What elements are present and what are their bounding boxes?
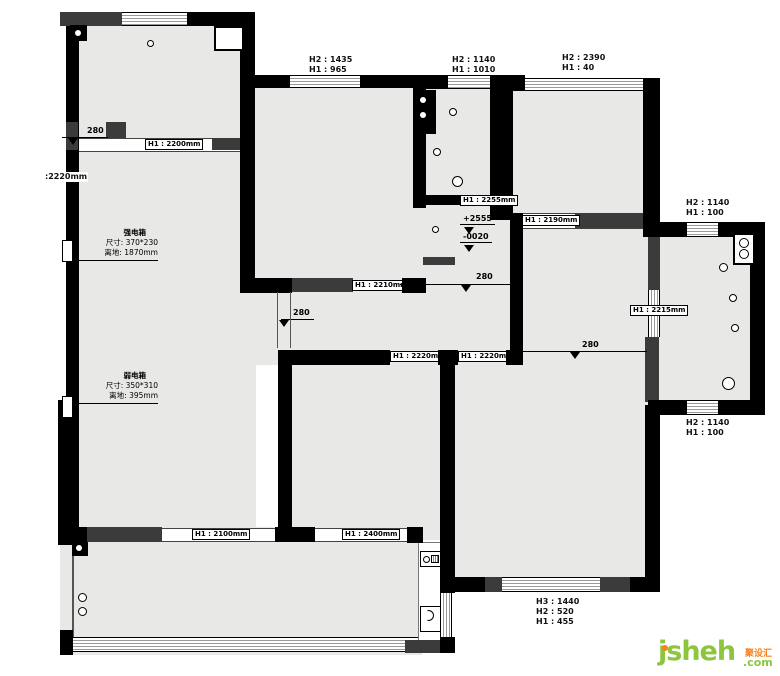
weak-electric-box-note: 弱电箱 尺寸: 350*310 离地: 395mm: [72, 371, 158, 404]
window: [440, 593, 452, 637]
room-mid-top: [240, 75, 413, 293]
wall: [718, 400, 765, 415]
dim-line: H1 : 455: [536, 617, 579, 627]
beam-segment: [575, 213, 643, 228]
plumbing-point: [731, 324, 739, 332]
wall: [440, 637, 455, 653]
wall: [407, 527, 423, 543]
window: [687, 222, 718, 237]
washer-fixture: [733, 233, 755, 265]
wall: [60, 630, 73, 655]
level-line: [400, 284, 510, 285]
note-height: 离地: 1870mm: [72, 248, 158, 258]
note-size: 尺寸: 350*310: [72, 381, 158, 391]
wall: [66, 527, 87, 542]
window: [502, 577, 600, 592]
lintel-label: H1 : 2100mm: [192, 529, 250, 540]
ceiling-point: [147, 40, 154, 47]
fixture-point: [420, 97, 426, 103]
lintel-label: H1 : 2400mm: [342, 529, 400, 540]
window: [687, 400, 718, 415]
plumbing-point: [719, 263, 728, 272]
fixture-point: [420, 112, 426, 118]
beam-segment: [212, 138, 243, 150]
wall: [255, 75, 290, 88]
wall: [510, 213, 523, 365]
fixture-point: [75, 30, 81, 36]
lintel-label: H1 : 2215mm: [630, 305, 688, 316]
beam-segment: [66, 122, 78, 150]
wall: [426, 75, 448, 89]
level-triangle-icon: [68, 138, 78, 145]
window-dim-label: H2 : 1140 H1 : 100: [686, 198, 729, 218]
lintel-label: H1 : 2255mm: [460, 195, 518, 206]
wall: [240, 12, 255, 293]
wall: [630, 577, 660, 592]
plumbing-point: [432, 226, 439, 233]
valve-icon: [423, 556, 430, 563]
strong-electric-box-symbol: [62, 240, 73, 262]
wall: [275, 527, 315, 542]
room-bottom-right: [440, 348, 660, 592]
wall: [58, 400, 79, 545]
note-title: 弱电箱: [72, 371, 158, 381]
wall: [402, 278, 426, 293]
wall: [72, 556, 74, 637]
leader-line: [290, 292, 291, 348]
leader-line: [277, 292, 278, 348]
level-value: 280: [293, 308, 310, 317]
wall: [440, 365, 455, 593]
beam-segment: [485, 577, 502, 592]
fixture-point: [76, 545, 82, 551]
wall: [455, 577, 485, 592]
room-top-right: [513, 78, 660, 230]
dim-line: H1 : 100: [686, 208, 729, 218]
dim-line: H2 : 1140: [452, 55, 495, 65]
level-value: 280: [582, 340, 599, 349]
dim-line: H1 : 965: [309, 65, 352, 75]
level-value: 280: [87, 126, 104, 135]
beam-segment: [87, 527, 162, 542]
window-dim-label: H2 : 1140 H1 : 1010: [452, 55, 495, 75]
dim-line: H2 : 2390: [562, 53, 605, 63]
weak-electric-box-symbol: [62, 396, 73, 418]
window: [290, 75, 360, 88]
level-triangle-icon: [464, 245, 474, 252]
elevation-value: +2555: [460, 214, 495, 225]
dim-line: H1 : 100: [686, 428, 729, 438]
window-dim-label: H2 : 2390 H1 : 40: [562, 53, 605, 73]
duct-shaft: [214, 26, 244, 51]
room-bedroom: [278, 350, 455, 540]
window: [73, 637, 418, 652]
note-size: 尺寸: 370*230: [72, 238, 158, 248]
room-living: [66, 150, 256, 540]
dim-line: H2 : 520: [536, 607, 579, 617]
dim-line: H1 : 40: [562, 63, 605, 73]
wall: [240, 278, 292, 293]
wall: [660, 222, 687, 237]
wall: [360, 75, 413, 88]
plumbing-point: [729, 294, 737, 302]
elevation-value: -0020: [460, 232, 492, 243]
dim-line: H2 : 1140: [686, 198, 729, 208]
level-triangle-icon: [279, 320, 289, 327]
window: [448, 75, 490, 89]
dim-line: H2 : 1140: [686, 418, 729, 428]
plumbing-point: [433, 148, 441, 156]
plumbing-point: [449, 108, 457, 116]
wall: [506, 350, 523, 365]
lintel-label: H1 : 2200mm: [145, 139, 203, 150]
beam-segment: [60, 12, 122, 26]
wall: [643, 78, 660, 237]
window: [122, 12, 187, 26]
logo-tld-text: .com: [743, 656, 773, 669]
wall: [645, 405, 660, 592]
note-title: 强电箱: [72, 228, 158, 238]
beam-segment: [648, 237, 660, 290]
jsheh-logo: jsheh 聚设汇 .com: [658, 640, 780, 674]
window-dim-label: H2 : 1140 H1 : 100: [686, 418, 729, 438]
wall: [278, 350, 292, 540]
beam-segment: [423, 257, 455, 265]
dim-line: H1 : 1010: [452, 65, 495, 75]
window: [525, 78, 643, 91]
sink-fixture: [420, 606, 441, 632]
plumbing-point: [78, 593, 87, 602]
beam-segment: [645, 337, 659, 402]
level-value: 280: [476, 272, 493, 281]
meter-fixture: [420, 551, 441, 567]
plumbing-point: [78, 607, 87, 616]
grid-icon: [431, 555, 439, 563]
wall: [438, 350, 458, 365]
level-line: [455, 351, 647, 352]
balcony-bottom: [60, 527, 422, 655]
dim-line: H2 : 1435: [309, 55, 352, 65]
beam-segment: [600, 577, 630, 592]
beam-segment: [292, 278, 353, 292]
strong-electric-box-note: 强电箱 尺寸: 370*230 离地: 1870mm: [72, 228, 158, 261]
floor-drain: [722, 377, 735, 390]
note-height: 离地: 395mm: [72, 391, 158, 401]
wall: [278, 350, 390, 365]
lintel-label: H1 : 2190mm: [522, 215, 580, 226]
logo-brand-text: jsheh: [658, 636, 735, 667]
knob-icon: [739, 249, 749, 259]
window-dim-label: H3 : 1440 H2 : 520 H1 : 455: [536, 597, 579, 627]
plumbing-point: [452, 176, 463, 187]
level-triangle-icon: [461, 285, 471, 292]
door-swing-icon: [423, 610, 434, 621]
knob-icon: [739, 238, 749, 248]
window-dim-label: H2 : 1435 H1 : 965: [309, 55, 352, 75]
floor-plan: H1 : 2200mm H1 : 2255mm H1 : 2190mm H1 :…: [0, 0, 780, 676]
logo-dot-icon: [662, 645, 668, 651]
dim-line: H3 : 1440: [536, 597, 579, 607]
wall: [513, 75, 525, 91]
level-triangle-icon: [570, 352, 580, 359]
lintel-label: :2220mm: [44, 172, 88, 182]
